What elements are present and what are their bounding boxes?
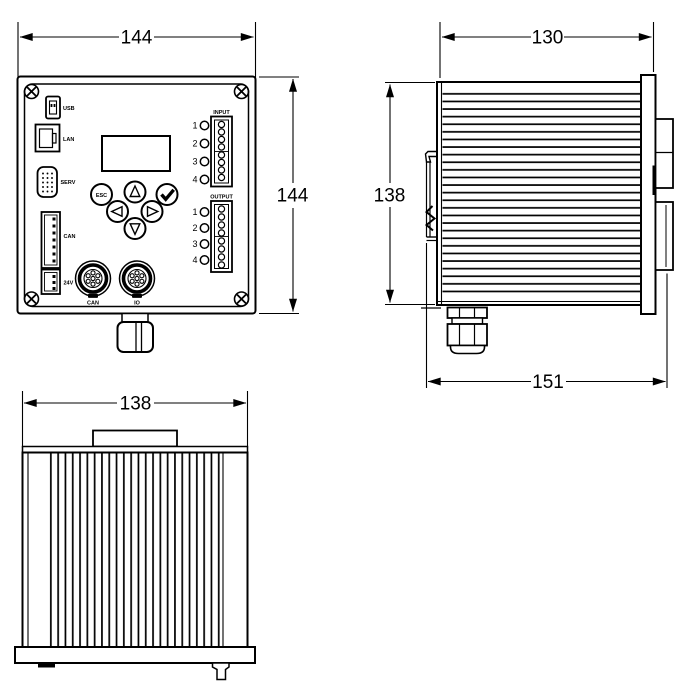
output-label: OUTPUT [210, 195, 233, 201]
connector-base [653, 166, 657, 196]
round-connector-can-label: CAN [87, 301, 99, 307]
front-height-dimension: 144 [259, 77, 309, 314]
heatsink-body-side [421, 82, 641, 308]
lower-connector-block [656, 202, 674, 270]
side-width-dimension: 130 [440, 22, 654, 78]
upper-connector-block [656, 119, 674, 188]
side-height-value: 138 [374, 186, 406, 207]
serv-label: SERV [61, 180, 76, 186]
input-channel-number: 3 [192, 157, 197, 167]
front-width-dimension: 144 [18, 22, 256, 78]
esc-button-label: ESC [96, 193, 107, 199]
heatsink-fins [443, 90, 641, 296]
cable-gland-front [118, 314, 154, 353]
front-height-value: 144 [277, 186, 309, 207]
connector-keyway [132, 294, 142, 298]
din-bracket-boss [93, 431, 177, 447]
heatsink-body-bottom [23, 453, 248, 648]
front-view: 144 144 [18, 22, 309, 352]
input-label: INPUT [213, 110, 230, 116]
mount-tab [38, 663, 55, 668]
lan-label: LAN [63, 137, 74, 143]
device-dimension-drawing: 144 144 [0, 0, 700, 700]
input-channel-number: 2 [192, 139, 197, 149]
side-depth-value: 151 [532, 372, 564, 393]
gland-tip [213, 663, 230, 680]
power-terminal-label: 24V [64, 281, 74, 287]
side-view: 130 138 [374, 22, 673, 393]
input-channel-number: 4 [192, 175, 197, 185]
base-plate [15, 647, 255, 663]
side-width-value: 130 [532, 28, 564, 49]
side-connector-blocks [653, 119, 674, 270]
cable-gland-side [448, 308, 488, 354]
gland-dome [451, 346, 485, 354]
input-channel-number: 1 [192, 121, 197, 131]
side-height-dimension: 138 [374, 83, 435, 305]
connector-keyway [88, 294, 98, 298]
bottom-width-value: 138 [120, 394, 152, 415]
can-terminal-label: CAN [64, 234, 76, 240]
din-rail-clip [426, 152, 438, 241]
bottom-view: 138 [15, 391, 255, 680]
round-connector-io-label: IO [134, 301, 141, 307]
heatsink-fins-vertical [48, 454, 223, 647]
output-channel-number: 4 [192, 255, 197, 265]
output-channel-number: 1 [192, 207, 197, 217]
front-width-value: 144 [121, 28, 153, 49]
technical-drawing-page: 144 144 [0, 0, 700, 700]
output-channel-number: 2 [192, 223, 197, 233]
output-channel-number: 3 [192, 239, 197, 249]
clip-hook [426, 152, 438, 163]
usb-label: USB [63, 106, 75, 112]
